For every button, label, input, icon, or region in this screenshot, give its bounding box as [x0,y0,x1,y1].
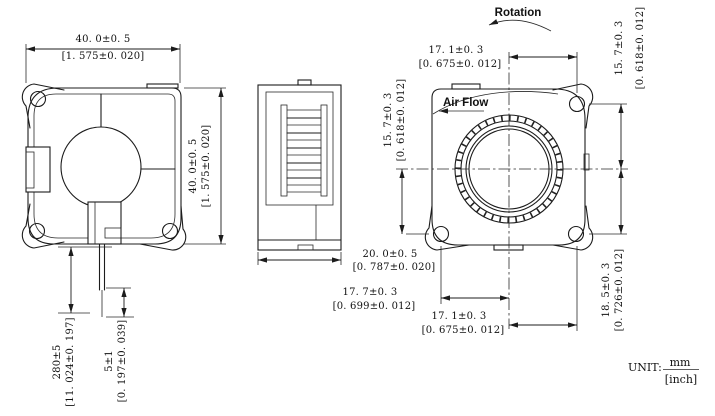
dim-front-width-mm: 40. 0±0. 5 [76,34,131,45]
dim-wire-tin-mm: 5±1 [104,350,115,372]
dim-rear-hole-top-x: 17. 1±0. 3 [0. 675±0. 012] [419,45,577,93]
front-terminal-box [26,147,50,192]
front-view [22,84,185,317]
fan-dimension-drawing: Rotation Air Flow 40. 0±0. 5 [1. 575±0. … [0,0,715,416]
dim-rear-br-x-inch: [0. 675±0. 012] [422,325,505,336]
front-top-tab [147,84,178,88]
dim-side-depth-mm: 20. 0±0. 5 [363,249,418,260]
rotation-annotation: Rotation [489,7,551,31]
dim-rear-right-y-inch: [0. 726±0. 012] [614,249,625,332]
dim-lead-wire-tin: 5±1 [0. 197±0. 039] [104,288,134,402]
rear-bottom-tab [494,245,523,250]
dim-lead-wire-length: 280±5 [11. 024±0. 197] [52,247,112,407]
dim-rear-hole-right-y: 18. 5±0. 3 [0. 726±0. 012] [589,169,627,331]
side-top-tab [298,80,311,85]
dim-front-height-inch: [1. 575±0. 020] [201,125,212,208]
rear-view [396,52,628,329]
dim-rear-left-y-inch: [0. 618±0. 012] [396,79,407,162]
front-hole-bottom-left [30,224,45,239]
dim-front-width-inch: [1. 575±0. 020] [62,51,145,62]
lead-wire [100,244,105,317]
dim-rear-right-y-mm: 18. 5±0. 3 [601,263,612,318]
unit-label: UNIT: [628,361,662,374]
dim-front-height: 40. 0±0. 5 [1. 575±0. 020] [184,88,226,244]
dim-rear-hole-top-y: 15. 7±0. 3 [0. 618±0. 012] [589,7,646,169]
dim-wire-tin-inch: [0. 197±0. 039] [117,320,128,403]
dim-front-width: 40. 0±0. 5 [1. 575±0. 020] [26,34,180,83]
front-impeller-hub [61,127,141,207]
airflow-label: Air Flow [443,97,488,109]
dim-rear-top-x-inch: [0. 675±0. 012] [419,59,502,70]
dim-wire-length-mm: 280±5 [52,345,63,380]
dim-rear-br-x-mm: 17. 1±0. 3 [432,311,487,322]
dim-rear-hole-bottom-left-x: 17. 7±0. 3 [0. 699±0. 012] [333,246,509,312]
rear-ear-bottom-right [553,206,593,250]
side-view [258,80,341,250]
rotation-arrow [489,20,551,31]
dim-rear-left-y-mm: 15. 7±0. 3 [383,93,394,148]
side-impeller-cage [281,105,327,196]
dim-front-height-mm: 40. 0±0. 5 [188,139,199,194]
dim-rear-bl-x-inch: [0. 699±0. 012] [333,301,416,312]
dim-side-depth: 20. 0±0. 5 [0. 787±0. 020] [258,249,435,273]
side-bottom-tab [298,245,313,250]
unit-numerator: mm [670,356,691,369]
dim-wire-length-inch: [11. 024±0. 197] [65,317,76,406]
dim-rear-hole-bottom-right-x: 17. 1±0. 3 [0. 675±0. 012] [422,246,577,336]
dim-rear-top-x-mm: 17. 1±0. 3 [429,45,484,56]
unit-denominator: [inch] [665,373,697,386]
dim-rear-top-y-inch: [0. 618±0. 012] [635,7,646,90]
technical-drawing-page: Rotation Air Flow 40. 0±0. 5 [1. 575±0. … [0,0,715,416]
dim-rear-bl-x-mm: 17. 7±0. 3 [343,287,398,298]
dim-rear-hole-left-y: 15. 7±0. 3 [0. 618±0. 012] [383,79,429,234]
unit-note: UNIT: mm [inch] [628,356,699,386]
rear-ear-top-right [553,84,593,128]
rotation-label: Rotation [495,7,542,19]
dim-side-depth-inch: [0. 787±0. 020] [353,262,436,273]
rear-top-tab [452,84,480,89]
airflow-annotation: Air Flow [439,97,488,111]
dim-rear-top-y-mm: 15. 7±0. 3 [614,21,625,76]
